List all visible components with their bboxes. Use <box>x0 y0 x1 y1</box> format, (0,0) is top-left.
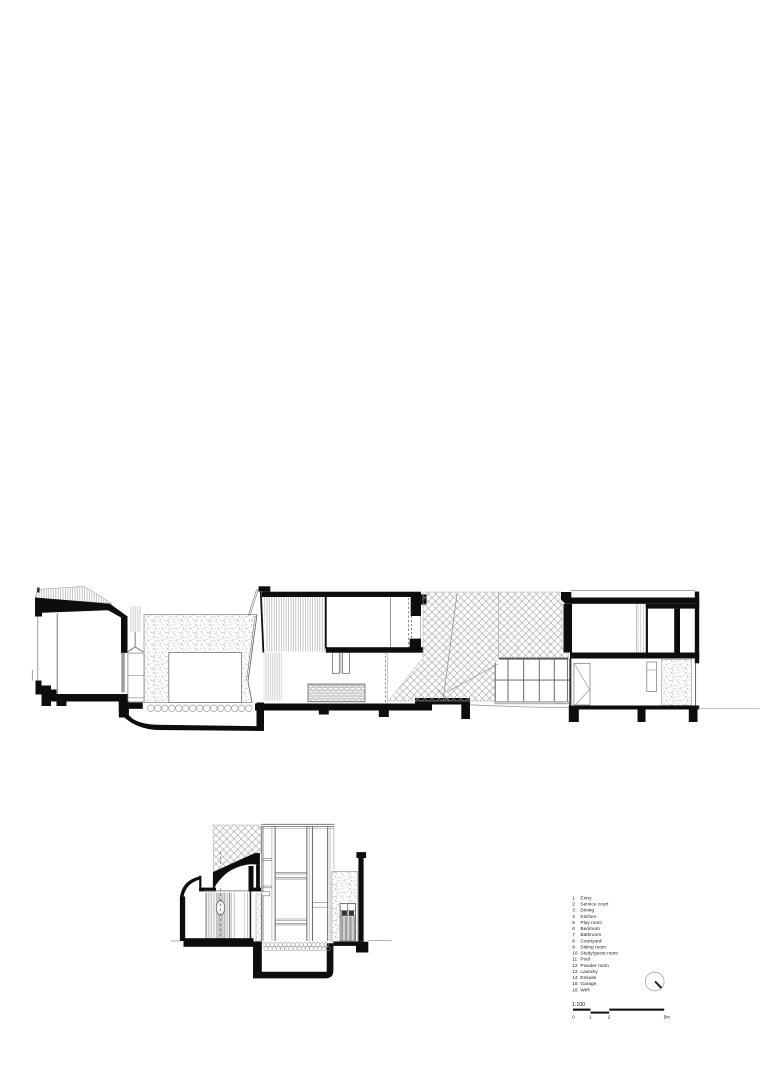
svg-text:Service court: Service court <box>580 902 609 908</box>
svg-text:5m: 5m <box>664 1015 671 1020</box>
svg-text:2: 2 <box>608 1015 611 1020</box>
svg-text:Ensuite: Ensuite <box>580 975 596 981</box>
svg-text:WIR: WIR <box>580 987 590 993</box>
svg-text:Entry: Entry <box>580 895 592 901</box>
svg-text:14: 14 <box>572 975 578 981</box>
svg-text:10: 10 <box>572 951 578 957</box>
svg-text:15: 15 <box>572 981 578 987</box>
svg-text:Powder room: Powder room <box>580 963 609 969</box>
svg-text:16: 16 <box>572 987 578 993</box>
svg-text:Sitting room: Sitting room <box>580 944 606 950</box>
svg-text:8: 8 <box>572 938 575 944</box>
svg-text:6: 6 <box>572 926 575 932</box>
svg-text:Laundry: Laundry <box>580 969 598 975</box>
svg-text:Garage: Garage <box>580 981 596 987</box>
svg-text:1: 1 <box>589 1015 592 1020</box>
svg-text:Courtyard: Courtyard <box>580 938 601 944</box>
svg-text:Study/guest room: Study/guest room <box>580 951 618 957</box>
svg-text:Play room: Play room <box>580 920 602 926</box>
svg-text:0: 0 <box>572 1015 575 1020</box>
svg-text:Bedroom: Bedroom <box>580 926 599 932</box>
svg-text:13: 13 <box>572 969 578 975</box>
svg-text:12: 12 <box>572 963 578 969</box>
svg-text:Pool: Pool <box>580 957 590 963</box>
svg-text:2: 2 <box>572 902 575 908</box>
svg-text:5: 5 <box>572 920 575 926</box>
svg-text:4: 4 <box>572 914 575 920</box>
svg-text:Bathroom: Bathroom <box>580 932 601 938</box>
svg-text:1:100: 1:100 <box>572 1002 585 1008</box>
svg-text:11: 11 <box>572 957 577 963</box>
svg-text:3: 3 <box>572 908 575 914</box>
svg-text:9: 9 <box>572 944 575 950</box>
svg-text:7: 7 <box>572 932 575 938</box>
svg-text:Kitchen: Kitchen <box>580 914 596 920</box>
svg-text:Dining: Dining <box>580 908 594 914</box>
svg-text:1: 1 <box>572 895 575 901</box>
